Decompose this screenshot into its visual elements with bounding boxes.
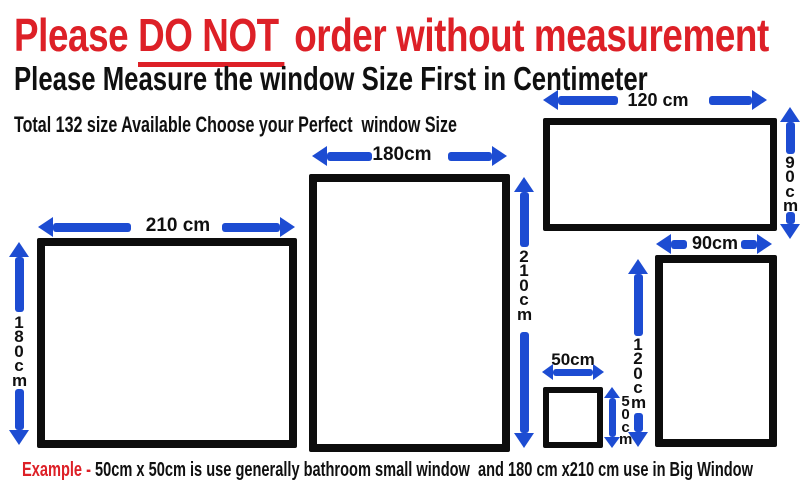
- arrow-up-icon: [514, 177, 534, 247]
- example-text: 50cm x 50cm is use generally bathroom sm…: [95, 459, 753, 481]
- window-frame-180x210: [309, 174, 510, 452]
- height-label-180: 180cm: [12, 316, 26, 388]
- arrow-up-down-icon: [604, 387, 620, 448]
- arrow-up-icon: [780, 107, 800, 154]
- sizes-available-note: Total 132 size Available Choose your Per…: [14, 113, 457, 137]
- arrow-down-icon: [9, 389, 29, 445]
- width-label-210: 210 cm: [133, 215, 223, 237]
- title-prefix: Please: [14, 9, 138, 61]
- title-emphasis: DO NOT: [138, 9, 284, 67]
- arrow-right-icon: [709, 90, 767, 110]
- example-note: Example - 50cm x 50cm is use generally b…: [22, 459, 753, 481]
- arrow-right-icon: [448, 146, 507, 166]
- arrow-right-icon: [222, 217, 295, 237]
- arrow-left-icon: [543, 90, 618, 110]
- arrow-up-icon: [628, 259, 648, 336]
- height-label-120: 120cm: [631, 338, 645, 410]
- height-label-50: 50cm: [619, 396, 632, 447]
- window-frame-50x50: [543, 387, 603, 448]
- arrow-left-icon: [656, 234, 687, 254]
- window-frame-210x180: [37, 238, 297, 448]
- height-label-210: 210cm: [517, 250, 531, 322]
- example-label: Example -: [22, 459, 95, 481]
- title-suffix: order without measurement: [284, 9, 768, 61]
- window-frame-120x90: [543, 118, 777, 231]
- arrow-right-icon: [741, 234, 772, 254]
- page-title: Please DO NOT order without measurement: [14, 10, 769, 61]
- arrow-down-icon: [780, 212, 800, 239]
- arrow-up-icon: [9, 242, 29, 312]
- arrow-left-right-icon: [542, 364, 604, 380]
- measurement-infographic: Please DO NOT order without measurement …: [0, 0, 800, 494]
- width-label-180: 180cm: [370, 144, 434, 166]
- arrow-left-icon: [38, 217, 131, 237]
- window-frame-90x120: [655, 255, 777, 447]
- arrow-left-icon: [312, 146, 372, 166]
- arrow-down-icon: [514, 332, 534, 448]
- width-label-90: 90cm: [690, 233, 740, 254]
- width-label-120: 120 cm: [618, 90, 698, 111]
- height-label-90: 90cm: [783, 156, 797, 214]
